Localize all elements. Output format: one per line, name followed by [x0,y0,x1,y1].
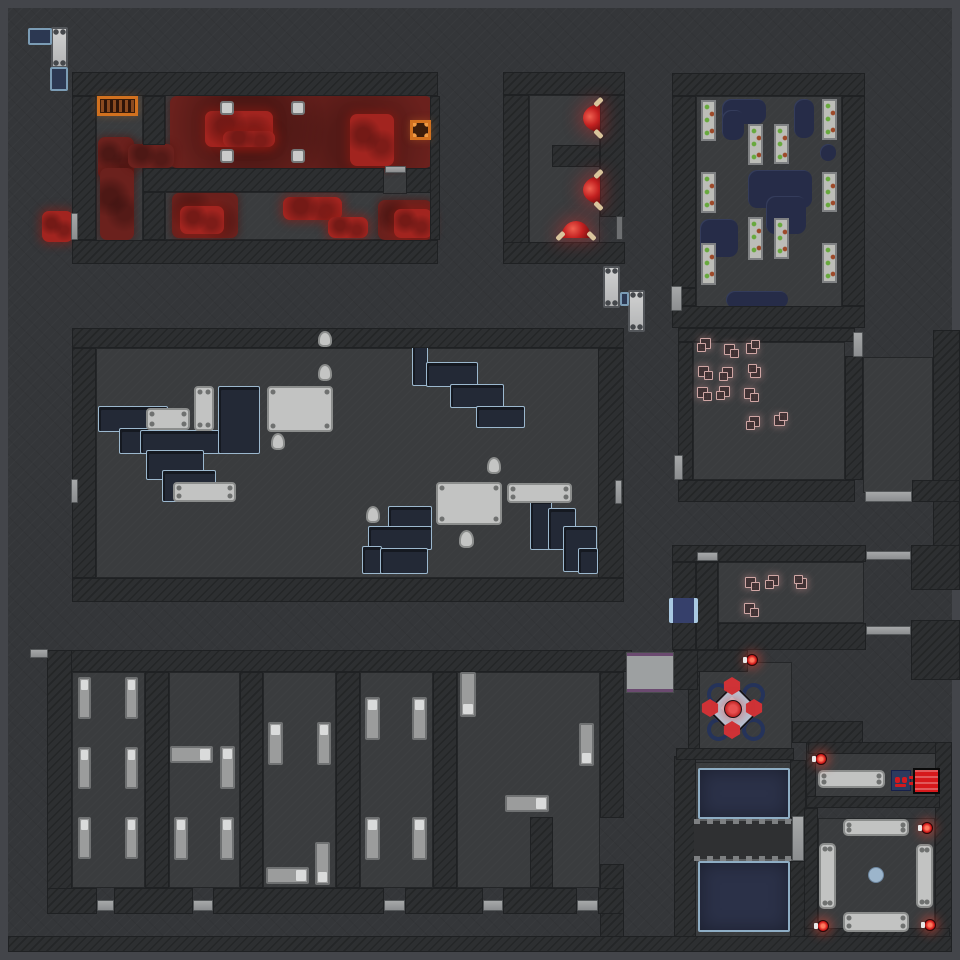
wall-segment [503,95,529,245]
map-border [0,8,8,952]
trench-channel [380,548,428,574]
crate-pink-part [750,393,759,402]
stool [318,331,332,347]
bed [579,723,594,766]
crate-orange [97,96,138,116]
wall-segment [47,888,97,914]
crate-pink-part [750,608,759,617]
bed-pillow [271,725,280,735]
bed [365,817,380,860]
room-floor [863,357,933,493]
crate-pink-part [765,580,774,589]
pillar [220,149,234,163]
wall-segment [678,480,855,502]
wall-segment [530,817,553,888]
water-puddle [820,144,836,161]
crate-orange [410,120,431,140]
planter [701,243,716,285]
wall-segment [503,888,577,914]
bed-pillow [415,700,424,710]
wall-segment [503,72,625,95]
water-puddle [722,110,744,140]
bed [78,747,91,789]
bed-pillow [296,870,306,881]
door[interactable] [615,480,622,504]
table [194,386,214,431]
door[interactable] [866,551,911,560]
mine-part [814,923,818,929]
crate-pink-part [779,412,788,421]
stool [271,433,285,450]
wall-segment [911,545,960,590]
flower-turret-part [724,700,742,718]
bed-pillow [223,820,231,830]
wall-segment [143,96,165,145]
wall-segment [114,888,193,914]
room-floor [718,562,864,623]
crate-pink [749,416,760,427]
door[interactable] [384,900,405,911]
bed-pillow [81,820,88,830]
wall-segment [143,168,384,192]
door[interactable] [866,626,911,635]
wall-segment [72,578,624,602]
bed-pillow [81,680,88,690]
planter [774,218,789,259]
door[interactable] [71,479,78,503]
machine-part [891,770,911,791]
bed [78,677,91,719]
wall-segment [696,562,718,650]
crate-pink [697,387,708,398]
bed [460,672,476,717]
bed [125,817,138,859]
wall-segment [842,96,865,306]
navy-airlock-segment [620,292,629,306]
wall-segment [933,330,960,553]
bed-pillow [81,750,88,760]
bed [268,722,283,765]
bed-pillow [200,749,210,760]
drain-circle [868,867,884,883]
blood-stain [394,209,432,238]
wall-segment [72,240,438,264]
pool-bridge [694,819,796,861]
wall-segment [672,306,865,328]
mine-part [918,825,922,831]
mine [817,920,829,932]
crate-orange-part [101,100,134,112]
bed-pillow [368,700,377,710]
wall-segment [598,888,624,914]
bed [174,817,188,860]
map-border [0,0,960,8]
crate-pink [796,578,807,589]
mine [815,753,827,765]
blood-stain [223,131,275,147]
bed [220,746,235,789]
trench-channel [218,386,260,454]
bench [818,770,885,788]
pillar [291,149,305,163]
crate-pink [745,577,756,588]
wall-segment [804,808,818,932]
door[interactable] [71,213,78,240]
bed-pillow [223,749,232,759]
door[interactable] [30,649,48,658]
wall-segment [143,192,165,240]
wall-segment [808,742,940,754]
blood-stain [128,144,174,168]
bed [412,817,427,860]
wall-segment [600,95,625,217]
wall-segment [672,96,696,288]
bed [505,795,549,812]
wall-segment [72,328,624,348]
door[interactable] [193,900,213,911]
table [267,386,333,432]
wall-segment [718,623,866,650]
table [173,482,236,502]
door[interactable] [865,491,912,502]
navy-airlock-segment [28,28,52,45]
blood-stain [180,206,224,234]
bed [266,867,309,884]
door[interactable] [792,816,804,861]
blue-door[interactable] [669,598,698,623]
pool-bridge-part [694,856,796,861]
crate-pink-part [748,364,757,373]
mine-part [812,756,816,762]
bed [170,746,213,763]
airlock-door[interactable] [51,27,68,68]
blood-stain [100,168,134,240]
bed [412,697,427,740]
machine-part [895,784,906,787]
bench [843,819,909,836]
door[interactable] [671,286,682,311]
bed-pillow [128,750,135,760]
crate-pink-part [746,421,755,430]
wall-segment [405,888,483,914]
door[interactable] [674,455,683,480]
trench-channel [362,546,382,574]
bench [819,843,836,909]
wall-segment [145,672,169,888]
facility-map[interactable] [0,0,960,960]
wall-segment [598,348,624,578]
blood-stain [328,217,368,238]
crate-pink-part [703,392,712,401]
pool [698,768,790,819]
trench-channel [476,406,525,428]
wall-segment [792,721,863,743]
crate-pink-part [716,391,725,400]
planter [701,100,716,141]
crate-pink [750,367,761,378]
crate-pink [744,388,755,399]
bed-pillow [128,680,135,690]
blood-stain [42,211,73,242]
machine-part [895,777,900,783]
flower-turret [702,678,762,738]
stool [366,506,380,523]
crate-pink-part [794,575,803,584]
wall-segment [72,348,96,578]
map-border [0,952,960,960]
planter [822,243,837,283]
elevator-pad[interactable] [627,653,673,692]
crate-pink [698,366,709,377]
wall-segment [336,672,360,888]
bed [78,817,91,859]
wall-segment [672,73,865,96]
wall-segment [912,480,960,502]
trench-channel [450,384,504,408]
wall-segment [47,650,72,912]
crate-pink-part [730,349,739,358]
door[interactable] [483,900,503,911]
airlock-door[interactable] [603,266,620,308]
crate-pink-part [697,343,706,352]
crate-pink [719,386,730,397]
crate-pink [774,415,785,426]
wall-segment [72,72,438,96]
door[interactable] [616,216,623,240]
wall-segment [213,888,384,914]
bench [916,844,933,908]
crate-pink [768,575,779,586]
bed [220,817,234,860]
door[interactable] [577,900,598,911]
mine [924,919,936,931]
blood-stain [350,114,394,166]
pillar [220,101,234,115]
wall-segment [406,168,432,193]
wall-segment [503,242,625,264]
bed [125,747,138,789]
crate-pink-part [751,340,760,349]
bed [315,842,330,885]
water-puddle [794,99,814,138]
bed-pillow [536,798,546,809]
mine-part [743,657,747,663]
mine [921,822,933,834]
trench-channel [578,548,598,574]
pillar [291,101,305,115]
airlock-door[interactable] [628,290,645,332]
wall-segment [240,672,263,888]
wall-segment [845,356,863,480]
door[interactable] [697,552,718,561]
room-floor [693,342,845,480]
planter [774,124,789,164]
wall-segment [430,96,440,240]
pool [698,861,790,932]
mine [746,654,758,666]
navy-airlock-segment [50,67,68,91]
door[interactable] [385,166,406,173]
crate-pink [724,344,735,355]
crate-pink [700,338,711,349]
bed [317,722,331,765]
wall-segment [47,650,632,672]
bed [125,677,138,719]
wall-segment [433,672,457,888]
bed [365,697,380,740]
bed-pillow [415,820,424,830]
bed-pillow [320,725,328,735]
crate-pink [746,343,757,354]
stool [459,530,474,548]
machine[interactable] [891,768,936,792]
stool [487,457,501,474]
mine-part [921,922,925,928]
pool-bridge-part [694,819,796,824]
planter [822,172,837,212]
planter [701,172,716,213]
wall-segment [8,936,952,952]
wall-segment [911,620,960,680]
crate-pink [744,603,755,614]
wall-segment [673,650,698,690]
stool [318,364,332,381]
table [436,482,502,525]
wall-segment [600,672,624,818]
table [507,483,572,503]
crate-pink-part [719,372,728,381]
planter [748,217,763,260]
bed-pillow [463,704,473,714]
bench [843,912,909,932]
bed-pillow [318,872,327,882]
crate-pink [722,367,733,378]
door[interactable] [97,900,114,911]
machine-part [902,777,907,783]
door[interactable] [853,332,863,357]
bed-pillow [177,820,185,830]
crate-pink-part [751,582,760,591]
bed-pillow [368,820,377,830]
planter [748,124,763,165]
table [146,408,190,430]
machine-part [913,768,940,794]
bed-pillow [128,820,135,830]
crate-pink-part [704,371,713,380]
room-floor [457,672,600,888]
wall-segment [552,145,600,167]
wall-segment [806,796,940,808]
planter [822,99,837,140]
wall-segment [676,748,794,760]
bed-pillow [582,753,591,763]
wall-segment [674,756,696,938]
